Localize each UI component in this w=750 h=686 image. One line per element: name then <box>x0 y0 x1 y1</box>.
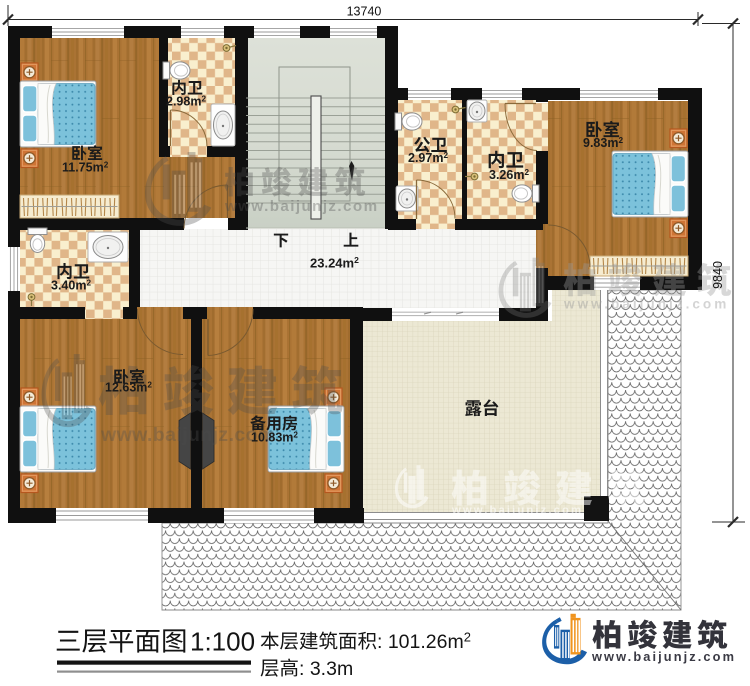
svg-text:1:100: 1:100 <box>190 627 255 657</box>
svg-text:www.baijunjz.com: www.baijunjz.com <box>563 297 729 312</box>
svg-text:2.97m2: 2.97m2 <box>408 151 448 165</box>
svg-text:13740: 13740 <box>347 5 382 19</box>
svg-text:10.83m2: 10.83m2 <box>251 430 298 444</box>
svg-text:3.40m2: 3.40m2 <box>51 278 91 292</box>
svg-text:3.26m2: 3.26m2 <box>489 168 529 182</box>
svg-text:9840: 9840 <box>711 261 725 289</box>
svg-text:2.98m2: 2.98m2 <box>166 94 206 108</box>
svg-text:: 3.3m: : 3.3m <box>299 658 353 680</box>
svg-text:12.63m2: 12.63m2 <box>105 380 152 394</box>
svg-text:www.baijunjz.com: www.baijunjz.com <box>100 424 276 446</box>
svg-text:23.24m2: 23.24m2 <box>310 255 359 270</box>
svg-text:: 101.26m2: : 101.26m2 <box>377 630 471 654</box>
svg-text:www.baijunjz.com: www.baijunjz.com <box>591 649 736 664</box>
svg-text:11.75m2: 11.75m2 <box>62 160 109 174</box>
svg-text:www.baijunjz.com: www.baijunjz.com <box>451 505 583 517</box>
svg-text:www.baijunjz.com: www.baijunjz.com <box>224 198 378 215</box>
svg-text:9.83m2: 9.83m2 <box>583 136 623 150</box>
